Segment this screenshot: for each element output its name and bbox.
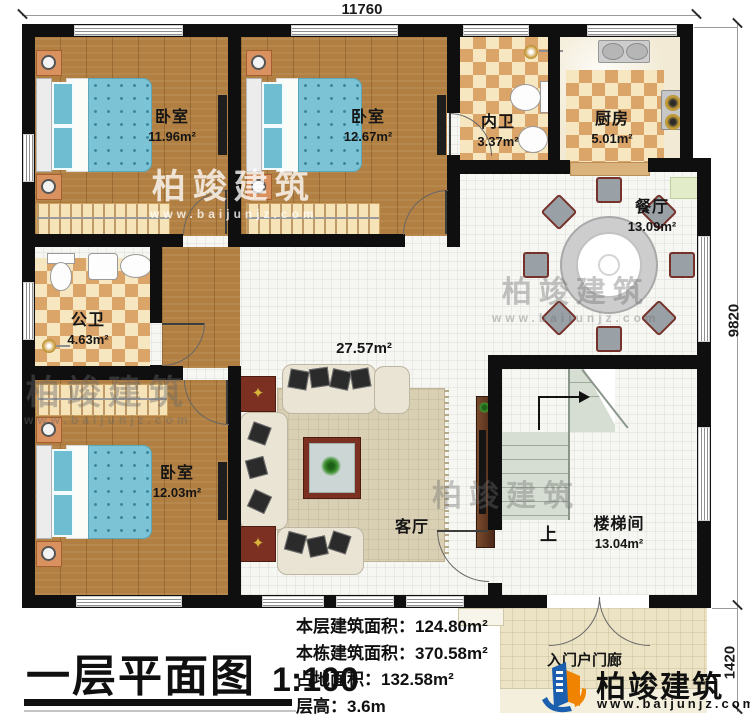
window [77, 597, 181, 606]
sofa-cushion [349, 367, 371, 389]
window [407, 597, 463, 606]
window [263, 597, 323, 606]
end-table: ✦ [240, 526, 276, 562]
room-name: 内卫 [458, 115, 538, 132]
room-area: 27.57m² [324, 340, 404, 357]
stat-row: 本栋建筑面积：370.58m² [296, 641, 488, 668]
wall [488, 355, 502, 530]
room-name: 卧室 [328, 110, 408, 127]
room-area: 12.03m² [137, 485, 217, 500]
room-name: 客厅 [372, 520, 452, 537]
exterior-patch [693, 30, 750, 158]
sofa-cushion [287, 368, 309, 390]
wall [548, 160, 570, 174]
wall [22, 234, 183, 247]
room-name: 卧室 [137, 466, 217, 483]
wardrobe [246, 203, 380, 237]
sofa-cushion [306, 535, 329, 558]
room-name: 厨房 [572, 112, 652, 129]
tv-panel [437, 95, 446, 155]
bedroom2-label: 卧室 12.67m² [328, 110, 408, 144]
living-name-label: 客厅 [372, 520, 452, 537]
room-name: 公卫 [48, 313, 128, 330]
wall [241, 234, 405, 247]
room-area: 5.01m² [572, 131, 652, 146]
dimension-line [712, 608, 738, 609]
stat-label: 占地面积： [296, 670, 381, 689]
stat-row: 本层建筑面积：124.80m² [296, 614, 488, 641]
dining-table-center [598, 254, 620, 276]
wall [150, 247, 162, 323]
room-name: 餐厅 [612, 200, 692, 217]
stat-value: 132.58m² [381, 670, 454, 689]
kitchen-label: 厨房 5.01m² [572, 112, 652, 146]
window [75, 26, 182, 35]
room-area: 11.96m² [132, 129, 212, 144]
end-table: ✦ [240, 376, 276, 412]
sofa-cushion [309, 367, 330, 388]
door-leaf [449, 113, 451, 155]
door-leaf [225, 190, 227, 234]
window [464, 26, 528, 35]
plant [321, 456, 341, 476]
plan-title: 一层平面图 [26, 652, 256, 701]
public-bath-label: 公卫 4.63m² [48, 313, 128, 347]
area-stats: 本层建筑面积：124.80m² 本栋建筑面积：370.58m² 占地面积：132… [296, 614, 488, 720]
wall [548, 24, 560, 174]
wall [460, 160, 548, 174]
room-name: 卧室 [132, 110, 212, 127]
wall [228, 24, 241, 247]
shower-head [524, 45, 538, 59]
wall [488, 355, 711, 369]
wall [447, 24, 460, 113]
bed-headboard [246, 78, 262, 172]
stove-burner [665, 114, 681, 130]
stat-row: 层高：3.6m [296, 694, 488, 721]
wall [447, 155, 460, 247]
dimension-line [694, 27, 738, 28]
dining-chair [669, 252, 695, 278]
nightstand [246, 50, 272, 76]
wall [680, 24, 693, 164]
stat-value: 3.6m [347, 697, 386, 716]
bed-pillow [52, 449, 74, 493]
wardrobe [36, 384, 168, 416]
brand-logo-svg [538, 658, 594, 716]
sink-basin [602, 43, 624, 60]
window [699, 428, 709, 520]
sofa-corner [374, 366, 410, 414]
bedroom1-label: 卧室 11.96m² [132, 110, 212, 144]
dim-right-main: 9820 [726, 293, 743, 349]
inner-bath-label: 内卫 3.37m² [458, 115, 538, 149]
room-area: 13.04m² [576, 536, 662, 551]
stair-divider [568, 369, 570, 520]
stair-flight-lower [502, 432, 569, 520]
stat-value: 124.80m² [415, 617, 488, 636]
bed-pillow [52, 82, 74, 126]
brand-website: www.baijunjz.com [597, 696, 750, 711]
wall [228, 366, 241, 608]
dimension-tick [17, 9, 28, 20]
bed-headboard [36, 445, 52, 539]
wall [503, 595, 547, 608]
washing-machine [88, 253, 118, 280]
living-area-label: 27.57m² [324, 338, 404, 357]
dining-label: 餐厅 13.09m² [612, 200, 692, 234]
title-underline [24, 699, 292, 706]
room-area: 4.63m² [48, 332, 128, 347]
title-underline-thin [24, 710, 296, 712]
dim-right-porch: 1420 [722, 637, 739, 689]
bed-pillow [52, 126, 74, 170]
door-leaf [162, 323, 204, 325]
stat-label: 本层建筑面积： [296, 617, 415, 636]
sofa-cushion [329, 368, 352, 391]
dining-chair [523, 252, 549, 278]
room-area: 13.09m² [612, 219, 692, 234]
bed-pillow [52, 493, 74, 537]
stairwell-label: 楼梯间 13.04m² [576, 517, 662, 551]
toilet-bowl [510, 84, 541, 111]
wardrobe [36, 203, 170, 237]
door-leaf [445, 190, 447, 234]
floor-plan-page: ✦ ✦ [0, 0, 750, 728]
nightstand [36, 50, 62, 76]
dim-top: 11760 [302, 1, 422, 18]
room-area: 12.67m² [328, 129, 408, 144]
nightstand [36, 541, 62, 567]
nightstand [246, 174, 272, 200]
bedroom3-label: 卧室 12.03m² [137, 466, 217, 500]
stair-direction-line [538, 396, 580, 398]
wall [648, 158, 697, 172]
sink-basin [626, 43, 648, 60]
bed-pillow [262, 82, 284, 126]
washbasin [120, 254, 152, 278]
tv-panel [218, 95, 227, 155]
window [588, 26, 676, 35]
window [292, 26, 397, 35]
nightstand [36, 174, 62, 200]
window [24, 283, 33, 339]
stat-label: 本栋建筑面积： [296, 644, 415, 663]
wall [488, 583, 502, 608]
fridge [670, 177, 699, 199]
nightstand [36, 417, 62, 443]
tv [479, 430, 486, 514]
stat-row: 占地面积：132.58m² [296, 667, 488, 694]
stat-value: 370.58m² [415, 644, 488, 663]
room-area: 3.37m² [458, 134, 538, 149]
stair-direction-line [538, 396, 540, 430]
brand-logo-icon [538, 658, 594, 716]
stat-label: 层高： [296, 697, 347, 716]
stair-up-label: 上 [540, 520, 557, 545]
wall [22, 366, 183, 380]
dimension-tick [691, 9, 702, 20]
wall [649, 595, 711, 608]
window [337, 597, 393, 606]
stair-arrow-icon [579, 391, 590, 403]
tv-panel [218, 462, 227, 520]
stove-burner [665, 95, 681, 111]
bed-pillow [262, 126, 284, 170]
room-name: 楼梯间 [576, 517, 662, 534]
wall [697, 158, 711, 608]
dining-chair [596, 326, 622, 352]
door-leaf [226, 380, 228, 424]
toilet-bowl [50, 262, 72, 291]
bed-headboard [36, 78, 52, 172]
window [24, 135, 33, 181]
kitchen-counter [570, 162, 650, 176]
window [699, 237, 709, 341]
